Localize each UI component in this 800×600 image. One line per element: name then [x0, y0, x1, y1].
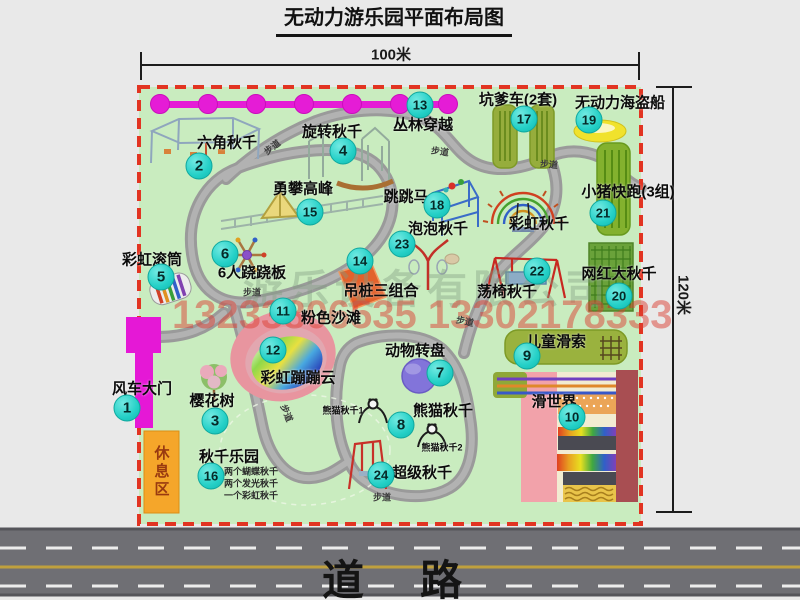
- label-14: 吊桩三组合: [343, 280, 418, 301]
- badge-12: 12: [260, 337, 287, 364]
- badge-22: 22: [524, 258, 551, 285]
- label-18: 跳跳马: [383, 186, 428, 207]
- badge-7: 7: [427, 360, 454, 387]
- label-20: 网红大秋千: [581, 263, 656, 284]
- badge-9: 9: [514, 343, 541, 370]
- label-12: 彩虹蹦蹦云: [260, 367, 335, 388]
- label-11: 粉色沙滩: [301, 307, 361, 328]
- label-4: 旋转秋千: [302, 121, 362, 142]
- walkway-label-4: 步道: [243, 286, 261, 299]
- badge-23: 23: [389, 231, 416, 258]
- badge-13: 13: [407, 92, 434, 119]
- extra-label-3: 熊猫秋千2: [421, 441, 462, 454]
- walkway-label-7: 步道: [373, 491, 391, 504]
- badge-16: 16: [198, 463, 225, 490]
- label-8: 熊猫秋千: [413, 400, 473, 421]
- label-15: 勇攀高峰: [273, 178, 333, 199]
- label-24: 超级秋千: [392, 462, 452, 483]
- label-21: 小猪快跑(3组): [581, 181, 674, 202]
- badge-4: 4: [330, 138, 357, 165]
- extra-label-2: 熊猫秋千1: [322, 404, 363, 417]
- badge-24: 24: [368, 462, 395, 489]
- badge-1: 1: [114, 395, 141, 422]
- width-dimension-label: 100米: [371, 44, 411, 65]
- page-title: 无动力游乐园平面布局图: [276, 1, 512, 37]
- label-7: 动物转盘: [385, 340, 445, 361]
- extra-label-1: 彩虹秋千: [509, 213, 569, 234]
- badge-21: 21: [590, 200, 617, 227]
- label-2: 六角秋千: [197, 132, 257, 153]
- height-dimension-label: 120米: [674, 275, 695, 315]
- walkway-label-2: 步道: [430, 143, 450, 158]
- badge-14: 14: [347, 248, 374, 275]
- badge-5: 5: [148, 264, 175, 291]
- walkway-label-1: 步道: [261, 136, 283, 157]
- badge-11: 11: [270, 298, 297, 325]
- badge-6: 6: [212, 241, 239, 268]
- walkway-label-5: 步道: [455, 313, 475, 329]
- badge-3: 3: [202, 408, 229, 435]
- badge-2: 2: [186, 153, 213, 180]
- rest-area-label: 休息区: [151, 445, 172, 499]
- walkway-label-3: 步道: [539, 157, 558, 172]
- note-16-3: 一个彩虹秋千: [224, 489, 278, 502]
- park-plan-page: 游乐设备有限公司 13233806535 13302178333 1风车大门2六…: [0, 0, 800, 600]
- label-23: 泡泡秋千: [408, 218, 468, 239]
- badge-20: 20: [606, 283, 633, 310]
- badge-19: 19: [576, 107, 603, 134]
- badge-17: 17: [511, 106, 538, 133]
- badge-10: 10: [559, 404, 586, 431]
- badge-8: 8: [388, 412, 415, 439]
- badge-15: 15: [297, 199, 324, 226]
- label-22: 荡椅秋千: [477, 281, 537, 302]
- badge-18: 18: [424, 192, 451, 219]
- walkway-label-6: 步道: [278, 402, 297, 424]
